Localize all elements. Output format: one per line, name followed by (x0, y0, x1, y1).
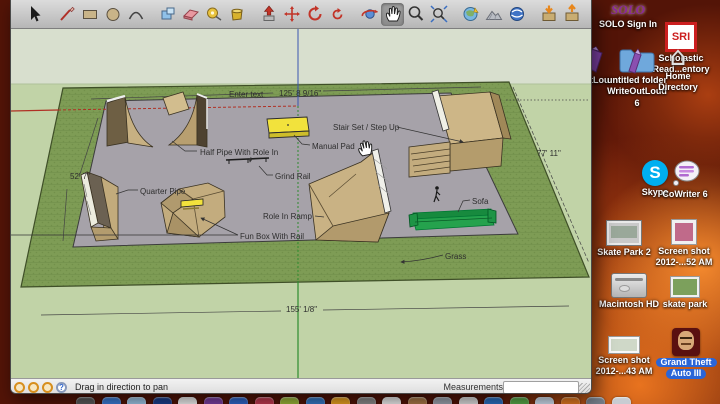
desktop-icon-label: Auto III (666, 369, 707, 378)
scene-label-sofa[interactable]: Sofa (472, 197, 488, 206)
dock-icon[interactable] (357, 397, 376, 404)
dock-icon[interactable] (433, 397, 452, 404)
tape-measure-tool-button[interactable] (202, 3, 225, 26)
scene-label-role-in-ramp[interactable]: Role In Ramp (263, 212, 312, 221)
dock-icon[interactable] (561, 397, 580, 404)
toolbar (11, 0, 591, 29)
dock-icon[interactable] (153, 397, 172, 404)
scene-label-dim-length-bottom[interactable]: 155' 1/8" (286, 305, 317, 314)
model-viewport[interactable]: Enter text125' 8 9/16"Stair Set / Step U… (11, 29, 591, 378)
dock-icon[interactable] (178, 397, 197, 404)
get-models-tool-button[interactable] (537, 3, 560, 26)
hard-drive-icon (611, 273, 647, 298)
help-icon[interactable]: ? (56, 382, 67, 393)
desktop-icon-screenshot-43[interactable]: Screen shot2012-...43 AM (592, 336, 656, 377)
measurements-input[interactable] (503, 381, 579, 394)
scene-label-dim-width-right[interactable]: 77' 11" (537, 149, 561, 158)
desktop-icon-label: 2012-...52 AM (656, 258, 713, 267)
phototex-icon (507, 4, 527, 24)
sketchup-window: Enter text125' 8 9/16"Stair Set / Step U… (10, 0, 592, 394)
sky (11, 29, 591, 84)
dock-icon[interactable] (586, 397, 605, 404)
desktop-icon-grand-theft-auto[interactable]: Grand TheftAuto III (654, 328, 718, 379)
pan-icon (383, 4, 403, 24)
desktop-icon-label: Screen shot (598, 356, 650, 365)
select-icon (25, 4, 45, 24)
rectangle-icon (80, 4, 100, 24)
geolocation-icon[interactable] (14, 382, 25, 393)
tape-icon (204, 4, 224, 24)
scene-label-grass[interactable]: Grass (445, 252, 466, 261)
desktop-icon-label: Home (665, 72, 690, 81)
circle-tool-button[interactable] (101, 3, 124, 26)
eraser-icon (181, 4, 201, 24)
line-tool-button[interactable] (55, 3, 78, 26)
desktop-icon-label: 2012-...43 AM (596, 367, 653, 376)
terrain-icon (484, 4, 504, 24)
orbit-icon (360, 4, 380, 24)
home-icon: ⌂ (670, 44, 687, 70)
desktop-icon-label: Screen shot (658, 247, 710, 256)
rectangle-tool-button[interactable] (78, 3, 101, 26)
dock-icon[interactable] (102, 397, 121, 404)
dock-icon[interactable] (280, 397, 299, 404)
scene-label-dim-width-left[interactable]: 52' 7" (70, 172, 90, 181)
follow-me-tool-button[interactable] (326, 3, 349, 26)
desktop-icon-home-directory[interactable]: ⌂HomeDirectory (646, 44, 710, 93)
desktop-icon-label: Skate Park 2 (597, 248, 651, 257)
credit-icon[interactable] (28, 382, 39, 393)
dock-icon[interactable] (408, 397, 427, 404)
move-tool-button[interactable] (280, 3, 303, 26)
desktop-icon-label: 6 (634, 99, 639, 108)
pushpull-icon (259, 4, 279, 24)
dock-icon[interactable] (459, 397, 478, 404)
scene-label-grind-rail[interactable]: Grind Rail (275, 172, 311, 181)
screenshot-thumbnail-icon (670, 276, 700, 298)
zoom-icon (406, 4, 426, 24)
scene-label-stair-set[interactable]: Stair Set / Step Up (333, 123, 399, 132)
addloc-icon (461, 4, 481, 24)
zoom-tool-button[interactable] (404, 3, 427, 26)
dock-icon[interactable] (306, 397, 325, 404)
measurements-label: Measurements (443, 382, 503, 392)
grand-theft-auto-icon (672, 328, 700, 356)
desktop-icon-skate-park-2[interactable]: Skate Park 2 (592, 220, 656, 257)
scene-label-enter-text[interactable]: Enter text (229, 90, 263, 99)
dock-icon[interactable] (382, 397, 401, 404)
desktop-icon-label: Directory (658, 83, 698, 92)
getmodels-icon (539, 4, 559, 24)
rotate-icon (305, 4, 325, 24)
dock-icon[interactable] (331, 397, 350, 404)
add-location-tool-button[interactable] (459, 3, 482, 26)
pan-tool-button[interactable] (381, 3, 404, 26)
screenshot-thumbnail-icon (671, 219, 697, 245)
arc-icon (126, 4, 146, 24)
bucket-icon (227, 4, 247, 24)
status-bar: ? Drag in direction to pan Measurements (11, 378, 591, 394)
push-pull-tool-button[interactable] (257, 3, 280, 26)
manual-pad-obstacle[interactable] (267, 117, 309, 138)
scene-canvas[interactable] (11, 29, 591, 378)
dock-icon[interactable] (204, 397, 223, 404)
scene-label-half-pipe[interactable]: Half Pipe With Role In (200, 148, 278, 157)
circle-icon (103, 4, 123, 24)
scene-label-manual-pad[interactable]: Manual Pad (312, 142, 355, 151)
screenshot-thumbnail-icon (608, 336, 640, 354)
zoom-extents-tool-button[interactable] (427, 3, 450, 26)
dock[interactable] (0, 395, 720, 404)
orbit-tool-button[interactable] (358, 3, 381, 26)
desktop-icon-label: skate park (663, 300, 708, 309)
photo-textures-tool-button[interactable] (505, 3, 528, 26)
share-model-tool-button[interactable] (560, 3, 583, 26)
move-icon (282, 4, 302, 24)
eraser-tool-button[interactable] (179, 3, 202, 26)
toggle-terrain-tool-button[interactable] (482, 3, 505, 26)
claim-icon[interactable] (42, 382, 53, 393)
dock-icon[interactable] (76, 397, 95, 404)
line-icon (57, 4, 77, 24)
scene-label-quarter-pipe[interactable]: Quarter Pipe (140, 187, 185, 196)
resize-grip[interactable] (579, 383, 590, 394)
select-tool-button[interactable] (23, 3, 46, 26)
component-icon (158, 4, 178, 24)
solo-logo-icon: SOLO (611, 2, 645, 18)
status-hint: Drag in direction to pan (75, 382, 168, 392)
cowriter-icon (670, 160, 700, 188)
desktop-icon-screenshot-52[interactable]: Screen shot2012-...52 AM (652, 219, 716, 268)
dock-icon[interactable] (510, 397, 529, 404)
paint-bucket-tool-button[interactable] (225, 3, 248, 26)
dock-icon[interactable] (612, 397, 631, 404)
dock-icon[interactable] (484, 397, 503, 404)
dock-icon[interactable] (127, 397, 146, 404)
desktop-icon-label: Macintosh HD (599, 300, 659, 309)
arc-tool-button[interactable] (124, 3, 147, 26)
dock-icon[interactable] (535, 397, 554, 404)
dock-icon[interactable] (255, 397, 274, 404)
make-component-tool-button[interactable] (156, 3, 179, 26)
scene-label-dim-length-top[interactable]: 125' 8 9/16" (279, 89, 321, 98)
scene-label-fun-box[interactable]: Fun Box With Rail (240, 232, 304, 241)
followme-icon (328, 4, 348, 24)
desktop-icon-macintosh-hd[interactable]: Macintosh HD (597, 273, 661, 309)
dock-icon[interactable] (229, 397, 248, 404)
sharemodel-icon (562, 4, 582, 24)
desktop-icon-label: Grand Theft (656, 358, 717, 367)
desktop-icon-cowriter-6[interactable]: CoWriter 6 (653, 160, 717, 199)
desktop-icon-skate-park[interactable]: skate park (653, 276, 717, 309)
rotate-tool-button[interactable] (303, 3, 326, 26)
desktop-icon-label: CoWriter 6 (662, 190, 707, 199)
zoomext-icon (429, 4, 449, 24)
screenshot-thumbnail-icon (606, 220, 642, 246)
